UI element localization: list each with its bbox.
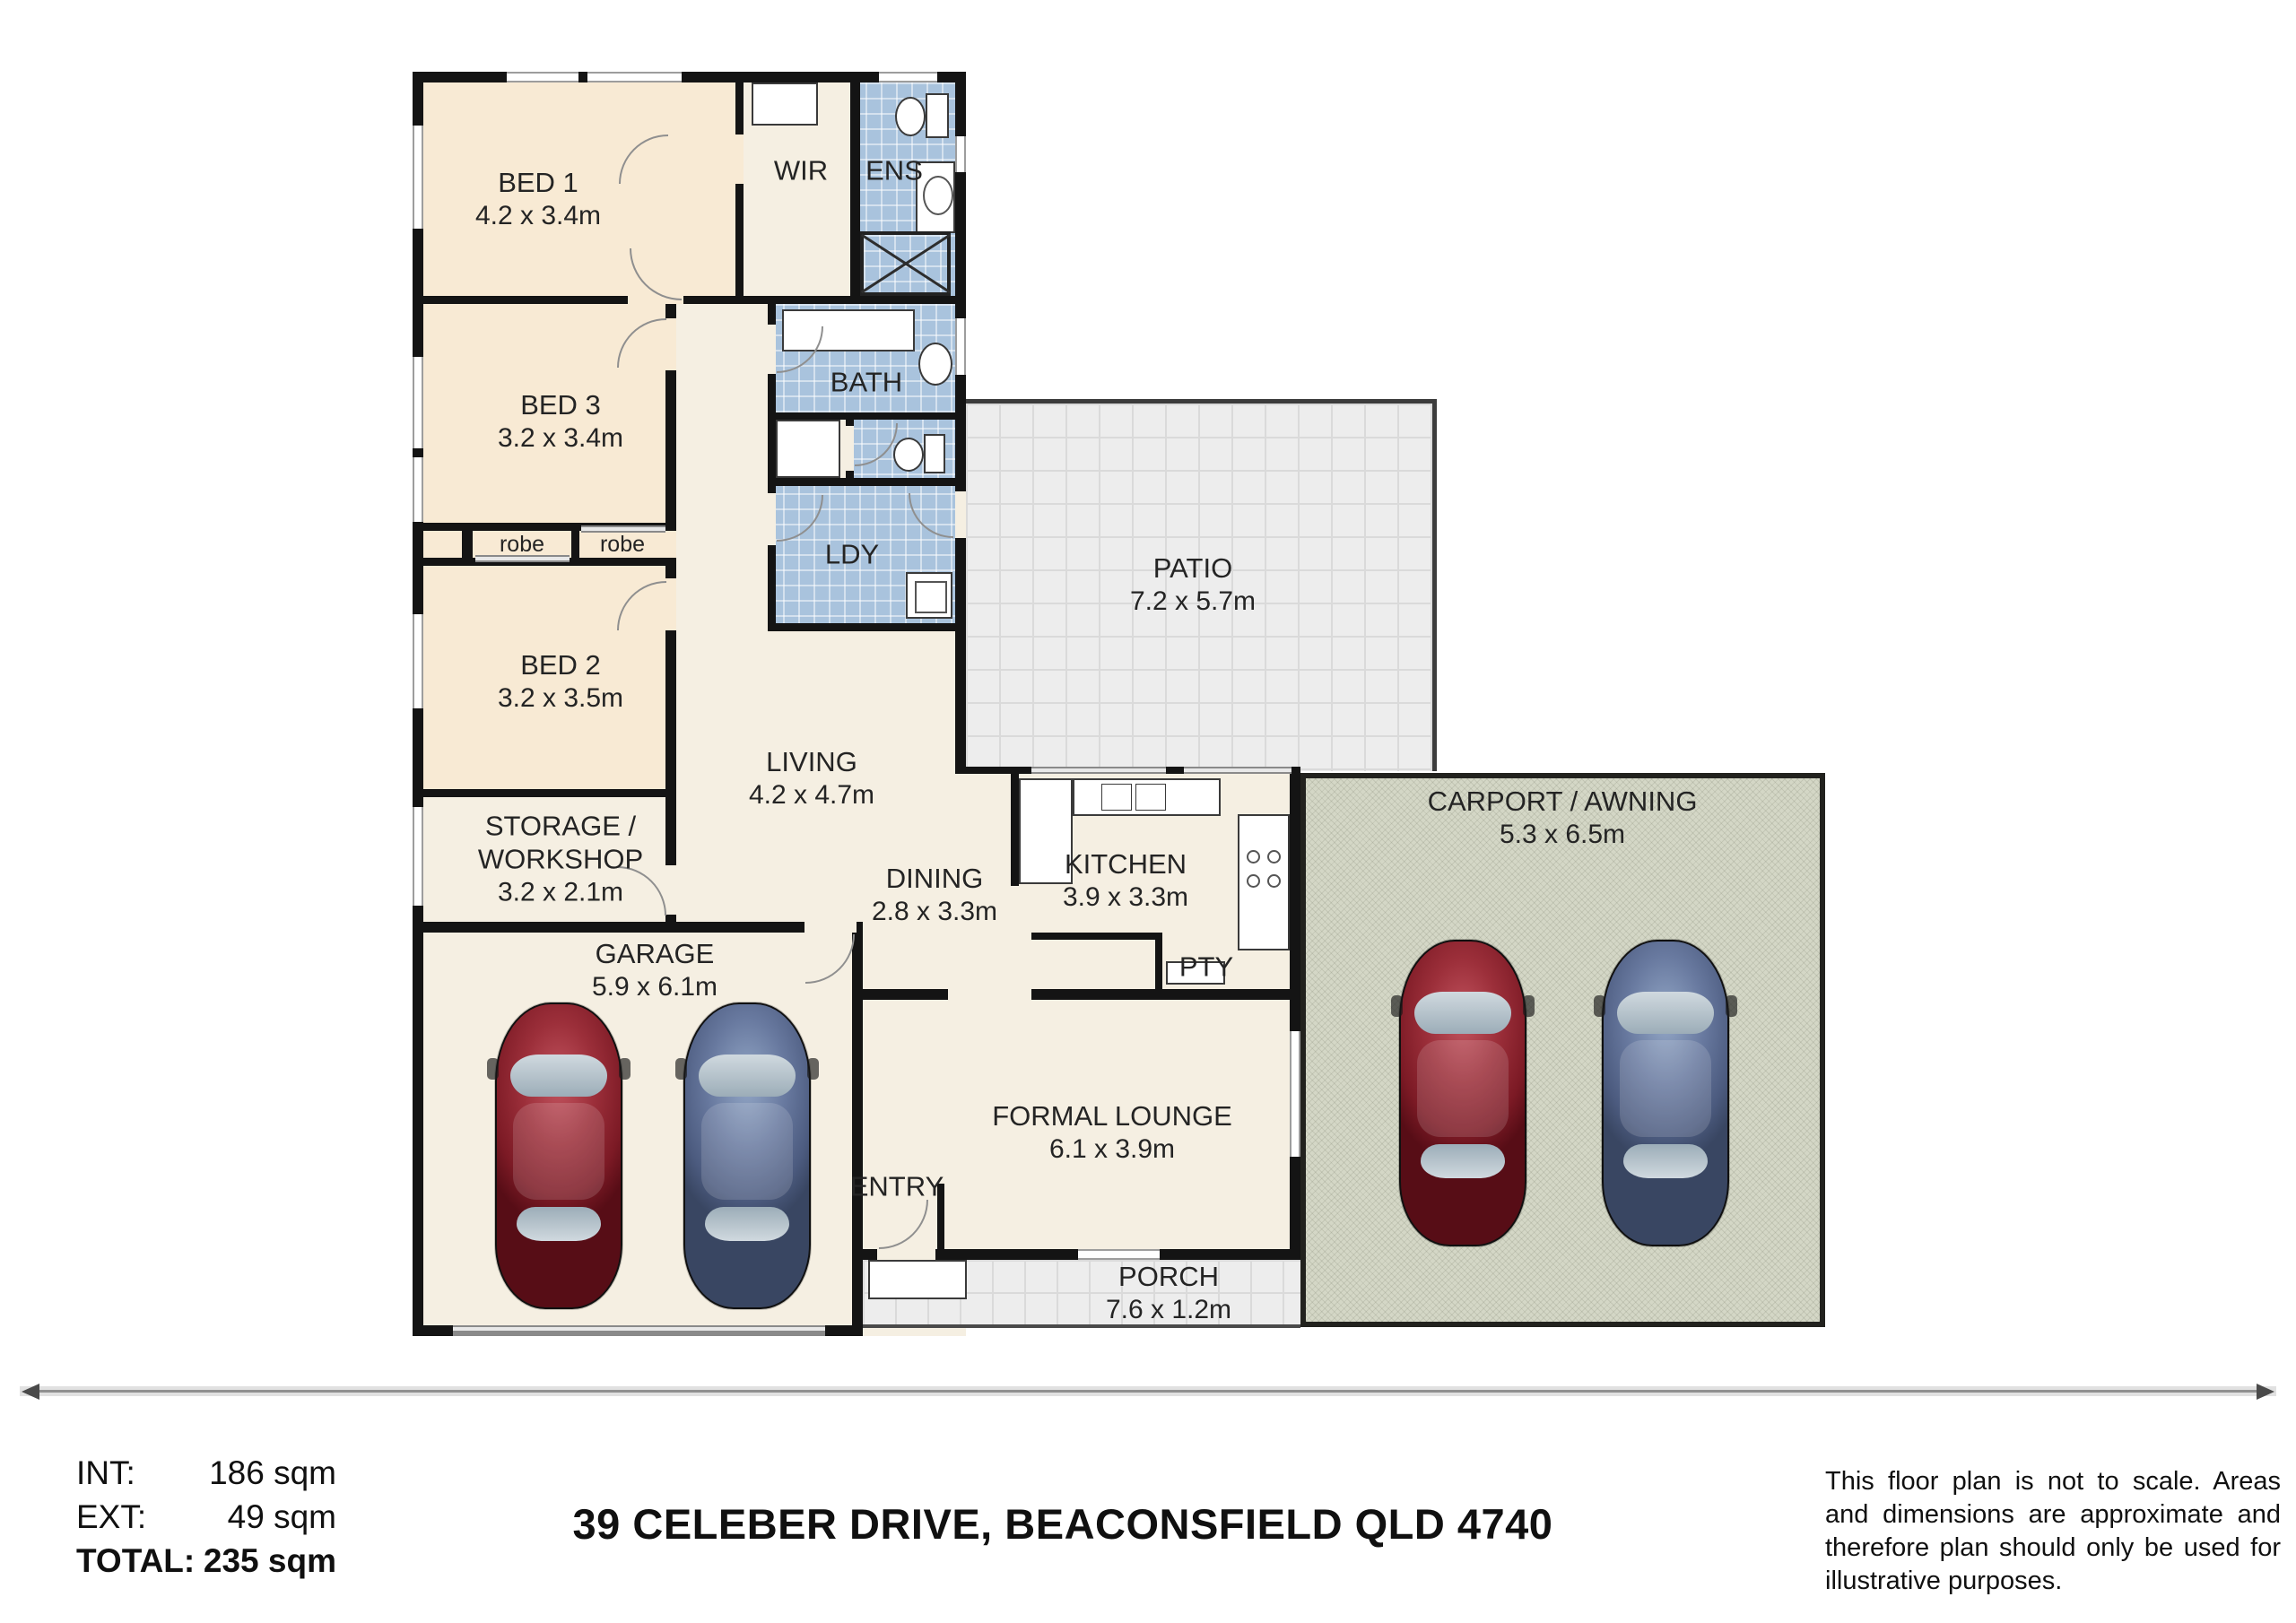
window xyxy=(955,136,966,172)
room-label-storage: STORAGE / WORKSHOP3.2 x 2.1m xyxy=(453,810,668,909)
toilet-cistern xyxy=(926,93,949,138)
cooktop-burner xyxy=(1267,874,1281,888)
wardrobe-shelf xyxy=(752,82,818,126)
window xyxy=(1290,1031,1300,1157)
window xyxy=(955,318,966,375)
car-mirror xyxy=(1594,995,1605,1017)
car-windshield xyxy=(699,1055,796,1097)
car-roof xyxy=(701,1103,793,1200)
car-rear-window xyxy=(705,1207,789,1241)
car-red-carport xyxy=(1399,940,1526,1246)
car-red-garage xyxy=(495,1002,622,1309)
cooktop-burner xyxy=(1247,850,1260,864)
car-rear-window xyxy=(517,1207,601,1241)
toilet xyxy=(893,438,924,472)
kitchen-sink xyxy=(1135,784,1166,811)
basin xyxy=(918,343,952,386)
wall xyxy=(1031,933,1155,940)
car-rear-window xyxy=(1421,1144,1505,1178)
window xyxy=(587,72,682,82)
summary-row-int: INT: 186 sqm xyxy=(76,1454,336,1492)
summary-table: INT: 186 sqm EXT: 49 sqm TOTAL: 235 sqm xyxy=(76,1454,336,1586)
room-label-robe-left: robe xyxy=(500,533,544,556)
car-mirror xyxy=(619,1058,631,1080)
car-rear-window xyxy=(1623,1144,1708,1178)
entry-step xyxy=(868,1260,967,1299)
scale-arrowhead-left xyxy=(22,1384,39,1400)
wall xyxy=(1290,774,1300,1000)
room-label-porch: PORCH7.6 x 1.2m xyxy=(1106,1260,1231,1326)
toilet-cistern xyxy=(924,434,945,473)
wall xyxy=(413,922,863,933)
car-mirror xyxy=(487,1058,499,1080)
window xyxy=(413,614,423,708)
room-label-garage: GARAGE5.9 x 6.1m xyxy=(592,937,717,1003)
door-opening xyxy=(768,493,776,545)
door-opening xyxy=(948,989,1031,1000)
window xyxy=(413,126,423,229)
room-label-carport: CARPORT / AWNING5.3 x 6.5m xyxy=(1428,785,1698,851)
wall xyxy=(462,523,473,566)
door-opening xyxy=(665,578,676,630)
door-opening xyxy=(735,135,744,184)
door-opening xyxy=(955,491,966,538)
sliding-door xyxy=(1031,767,1166,774)
wall xyxy=(413,789,676,797)
door-opening xyxy=(804,922,857,933)
car-windshield xyxy=(510,1055,607,1097)
window xyxy=(1078,1249,1160,1260)
basin-bowl xyxy=(923,176,953,215)
door-opening xyxy=(768,325,776,374)
room-label-pty: PTY xyxy=(1179,950,1233,984)
sliding-door xyxy=(1184,767,1291,774)
room-label-entry: ENTRY xyxy=(850,1170,944,1203)
garage-roller-door xyxy=(453,1325,825,1336)
room-label-robe-right: robe xyxy=(600,533,645,556)
wall xyxy=(776,478,966,486)
room-label-bed3: BED 33.2 x 3.4m xyxy=(498,388,623,455)
car-mirror xyxy=(1726,995,1737,1017)
door-opening xyxy=(846,426,854,471)
summary-value: 235 sqm xyxy=(204,1542,336,1580)
disclaimer-text: This floor plan is not to scale. Areas a… xyxy=(1825,1465,2281,1598)
room-label-living: LIVING4.2 x 4.7m xyxy=(749,745,874,811)
car-roof xyxy=(1620,1040,1711,1137)
summary-value: 49 sqm xyxy=(228,1498,336,1536)
car-windshield xyxy=(1617,992,1714,1034)
room-label-bed2: BED 23.2 x 3.5m xyxy=(498,648,623,715)
car-mirror xyxy=(675,1058,687,1080)
car-mirror xyxy=(1391,995,1403,1017)
car-blue-garage xyxy=(683,1002,811,1309)
wall xyxy=(768,623,966,631)
car-windshield xyxy=(1414,992,1511,1034)
room-label-patio: PATIO7.2 x 5.7m xyxy=(1130,551,1256,618)
room-label-bath: BATH xyxy=(831,366,902,399)
wall xyxy=(955,72,966,774)
summary-value: 186 sqm xyxy=(209,1454,336,1492)
room-label-dining: DINING2.8 x 3.3m xyxy=(872,862,997,928)
room-label-ldy: LDY xyxy=(825,538,879,571)
summary-label: INT: xyxy=(76,1454,135,1492)
room-label-formal-lounge: FORMAL LOUNGE6.1 x 3.9m xyxy=(992,1099,1232,1166)
car-roof xyxy=(1417,1040,1509,1137)
wall xyxy=(735,82,744,296)
window xyxy=(879,72,937,82)
kitchen-sink xyxy=(1101,784,1132,811)
cooktop-burner xyxy=(1247,874,1260,888)
room-label-ens: ENS xyxy=(865,154,923,187)
wall xyxy=(852,989,1300,1000)
wall xyxy=(571,523,579,566)
window xyxy=(413,807,423,906)
room-label-bed1: BED 14.2 x 3.4m xyxy=(475,166,601,232)
wall xyxy=(1011,774,1019,886)
door-opening xyxy=(665,318,676,370)
summary-row-total: TOTAL: 235 sqm xyxy=(76,1542,336,1580)
laundry-tub-bowl xyxy=(915,581,947,613)
window xyxy=(413,357,423,448)
wall xyxy=(776,412,966,420)
scale-arrowhead-right xyxy=(2257,1384,2274,1400)
summary-row-ext: EXT: 49 sqm xyxy=(76,1498,336,1536)
cooktop-burner xyxy=(1267,850,1281,864)
wall xyxy=(850,82,860,296)
linen-cupboard xyxy=(776,420,840,478)
door-opening xyxy=(877,1249,935,1260)
address-title: 39 CELEBER DRIVE, BEACONSFIELD QLD 4740 xyxy=(377,1499,1749,1549)
car-mirror xyxy=(807,1058,819,1080)
car-roof xyxy=(513,1103,604,1200)
wall xyxy=(852,922,863,1336)
window xyxy=(413,457,423,522)
wall xyxy=(1155,933,1162,989)
window xyxy=(507,72,578,82)
room-label-wir: WIR xyxy=(774,154,828,187)
shower xyxy=(860,231,951,296)
room-carport xyxy=(1300,773,1825,1327)
car-mirror xyxy=(1523,995,1535,1017)
car-blue-carport xyxy=(1602,940,1729,1246)
scale-arrow xyxy=(30,1390,2266,1393)
kitchen-bench xyxy=(1238,814,1290,950)
wall xyxy=(413,296,966,304)
summary-label: EXT: xyxy=(76,1498,146,1536)
summary-label: TOTAL: xyxy=(76,1542,195,1580)
room-label-kitchen: KITCHEN3.9 x 3.3m xyxy=(1063,847,1188,914)
floor-plan-page: BED 14.2 x 3.4m WIR ENS BED 33.2 x 3.4m … xyxy=(0,0,2296,1623)
toilet xyxy=(895,97,926,136)
